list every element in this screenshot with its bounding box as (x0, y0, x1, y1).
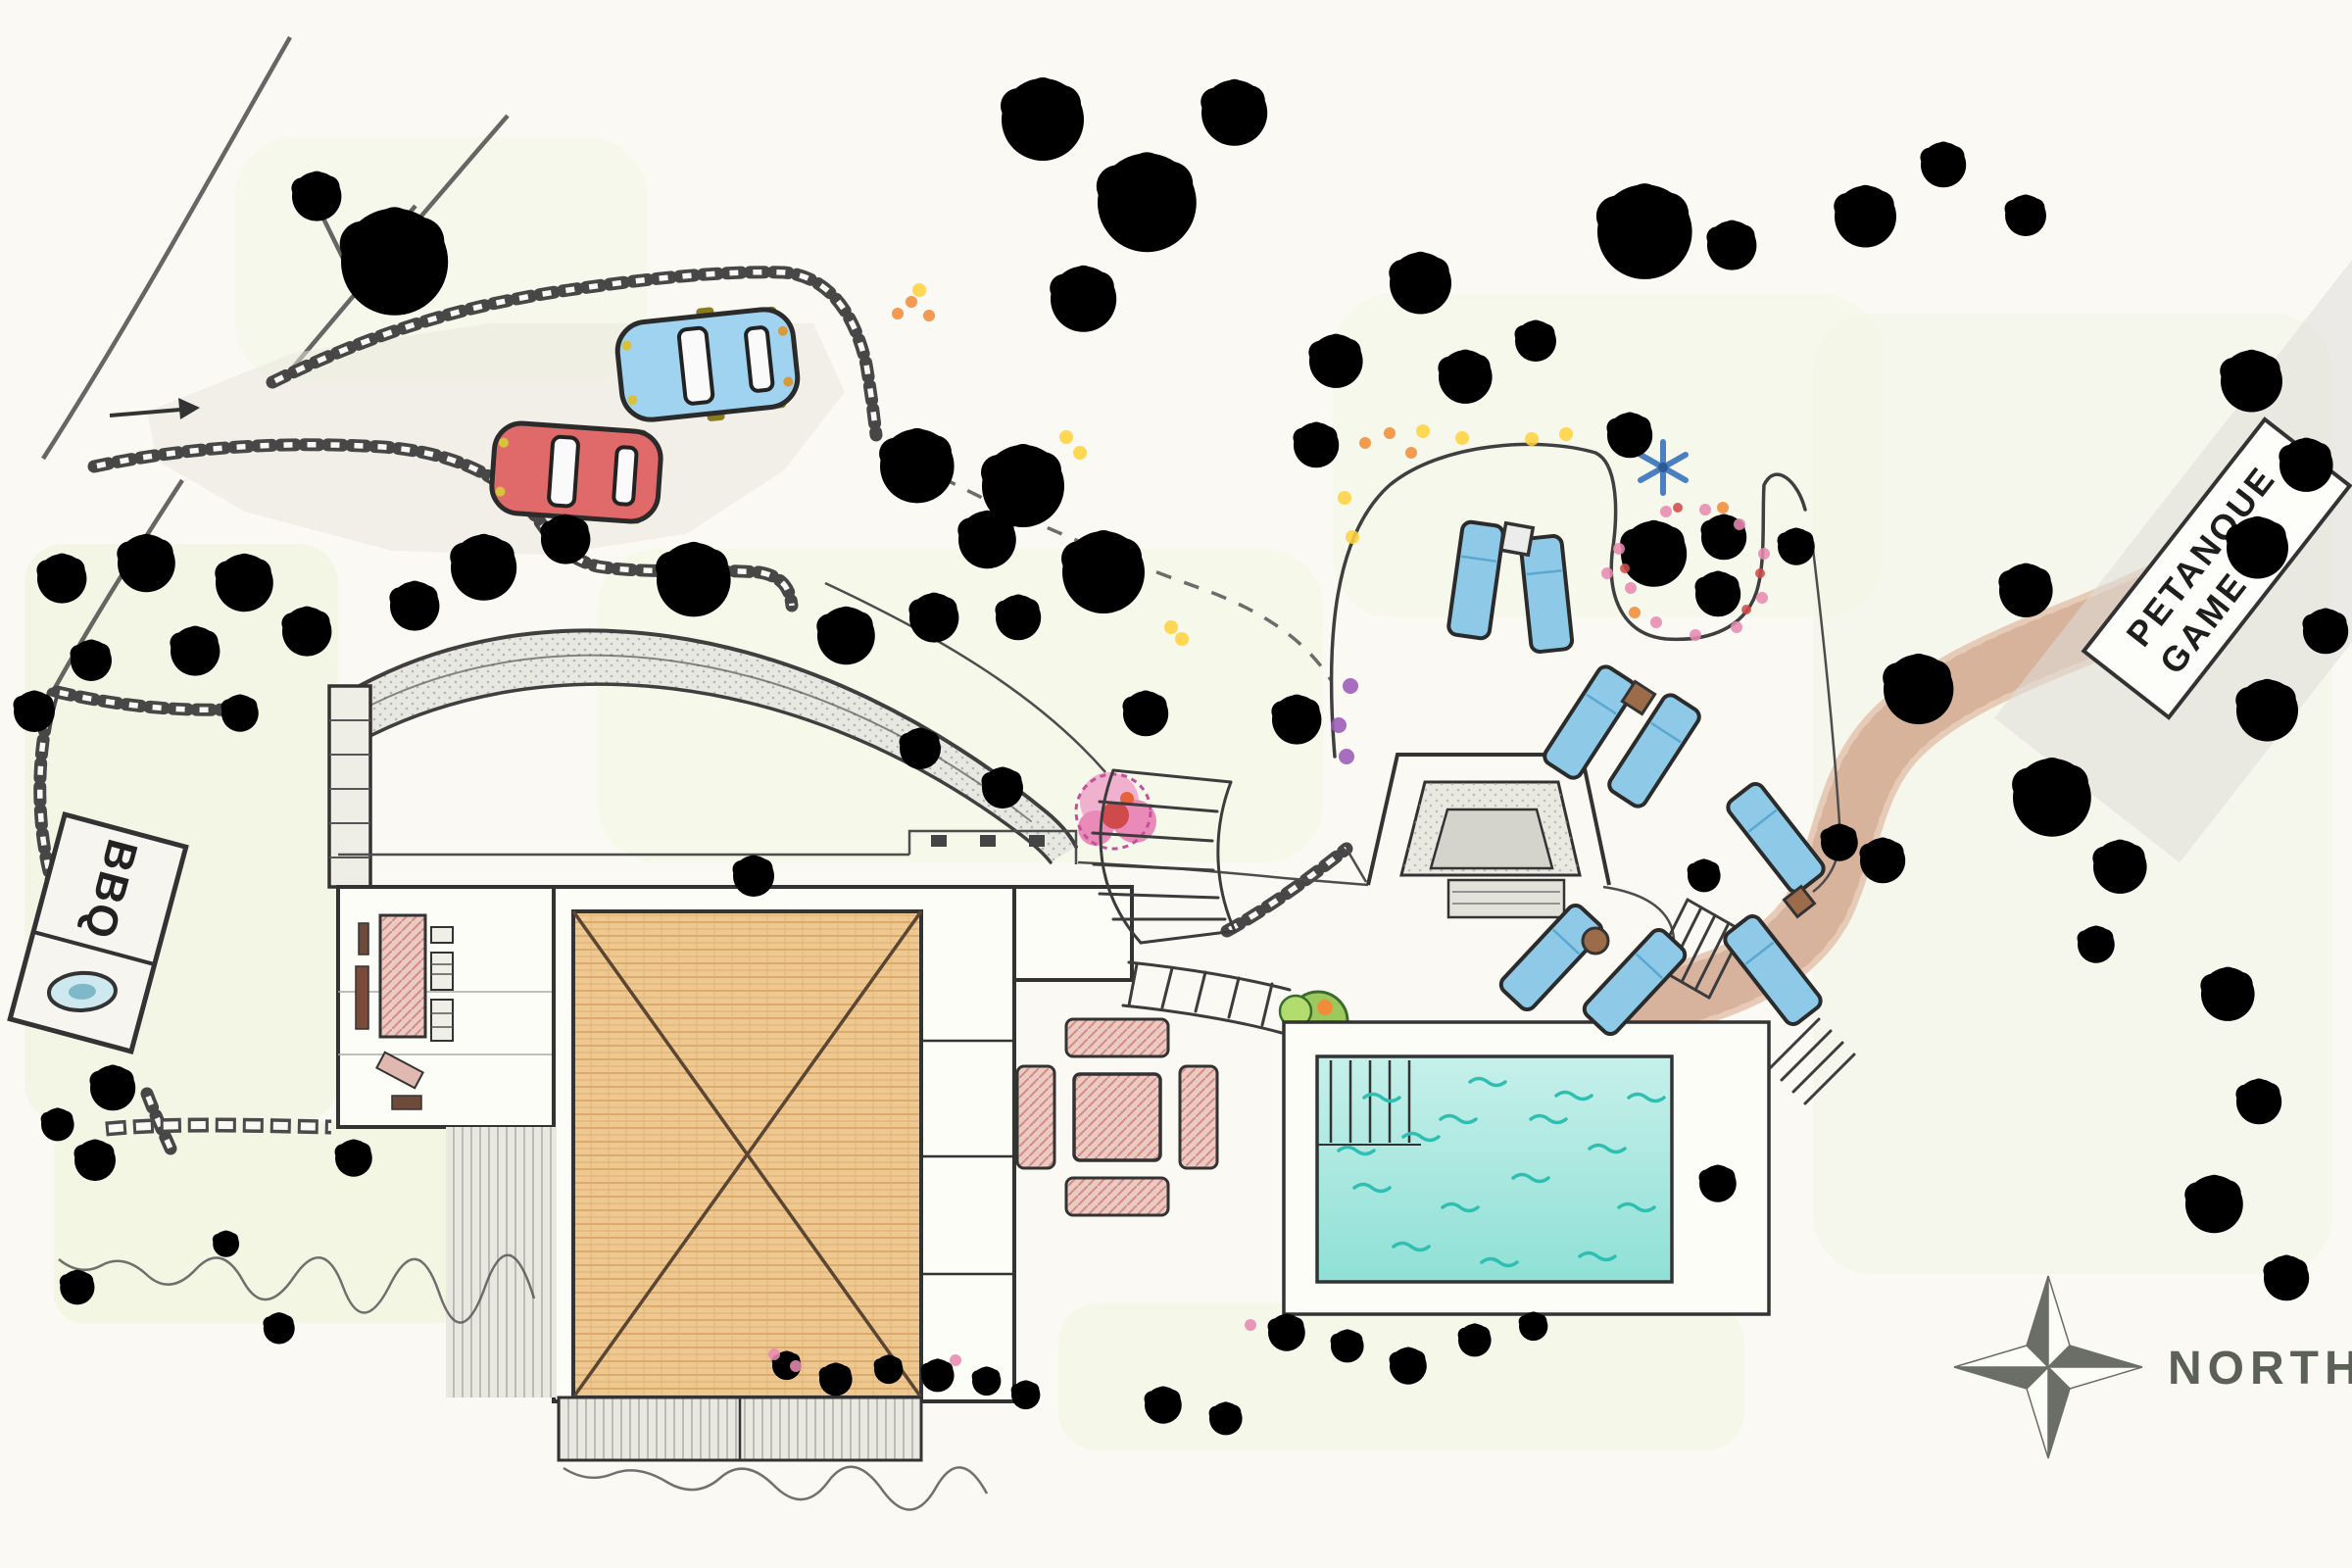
orange-flower (1359, 437, 1371, 449)
tree (1011, 1380, 1041, 1409)
orange-flower (906, 296, 917, 308)
orange-flower (1629, 607, 1641, 618)
pink-flower (1756, 592, 1768, 604)
north-compass: NORTH (1954, 1276, 2352, 1458)
purple-flower (1339, 749, 1354, 764)
tree (450, 534, 516, 601)
north-label: NORTH (2168, 1343, 2352, 1395)
purple-flower (1331, 717, 1347, 733)
pink-flower (790, 1360, 802, 1372)
tree (41, 1107, 74, 1141)
pink-flower (1734, 518, 1745, 530)
yellow-flower (1073, 446, 1087, 460)
dining-bench (1066, 1178, 1168, 1215)
tree (1834, 185, 1896, 248)
yellow-flower (1455, 431, 1469, 445)
pink-flower (1650, 616, 1662, 628)
tree (263, 1312, 294, 1344)
tree (14, 691, 56, 733)
red-flower (1741, 605, 1751, 614)
pink-flower (1731, 621, 1742, 633)
stone-pillar (329, 686, 370, 887)
yellow-flower (1346, 530, 1359, 544)
tree (1050, 266, 1116, 332)
pink-flower (950, 1354, 961, 1366)
pink-flower (1613, 543, 1625, 555)
tree (1688, 858, 1721, 892)
tree (1097, 152, 1197, 252)
sun-lounger (1497, 902, 1605, 1012)
pavers-south (559, 1397, 921, 1460)
amphitheater-bench (1448, 880, 1564, 917)
pink-flower (768, 1348, 780, 1360)
tree (1001, 77, 1084, 161)
orange-flower (1717, 502, 1729, 514)
pink-flower (1625, 582, 1637, 594)
pool (1284, 1022, 1769, 1314)
red-flower (1755, 568, 1765, 578)
tree (1308, 334, 1362, 388)
tree (1200, 79, 1267, 146)
pink-flower (1758, 548, 1770, 560)
pink-flower (1690, 629, 1701, 641)
roof (573, 911, 921, 1397)
yellow-flower (1559, 427, 1573, 441)
tree (2005, 195, 2047, 237)
pink-flower (1699, 504, 1711, 515)
house (338, 887, 1132, 1460)
red-flower (1620, 563, 1630, 573)
orange-flower (1384, 427, 1396, 439)
pink-flower (1245, 1319, 1256, 1331)
pink-flower (1601, 567, 1613, 579)
dining-bench (1180, 1066, 1217, 1168)
yellow-flower (1525, 432, 1539, 446)
tree (1596, 183, 1692, 279)
yellow-flower (1416, 424, 1430, 438)
dining-table (1074, 1074, 1160, 1160)
dining-bench (1066, 1019, 1168, 1056)
yellow-flower (1059, 430, 1073, 444)
patio-west (446, 1127, 557, 1397)
yellow-flower (1175, 632, 1189, 646)
tree (540, 514, 590, 564)
tree (2263, 1255, 2309, 1301)
car-red (490, 419, 662, 525)
yellow-flower (1164, 620, 1178, 634)
dining-set (1017, 1019, 1217, 1215)
tree (1293, 422, 1339, 468)
dining-bench (1017, 1066, 1054, 1168)
red-flower (1673, 503, 1683, 513)
orange-flower (923, 310, 935, 321)
yellow-flower (912, 283, 926, 297)
tree (1706, 220, 1756, 270)
purple-flower (1343, 678, 1358, 694)
pink-flower (1660, 506, 1672, 517)
tree (879, 428, 955, 504)
orange-flower (892, 308, 904, 319)
yellow-flower (1338, 491, 1351, 505)
site-plan: BBQ (0, 0, 2352, 1568)
bbq-basin-icon (48, 971, 117, 1012)
tree (389, 581, 439, 631)
orange-flower (1405, 447, 1417, 459)
tree (1920, 142, 1966, 188)
